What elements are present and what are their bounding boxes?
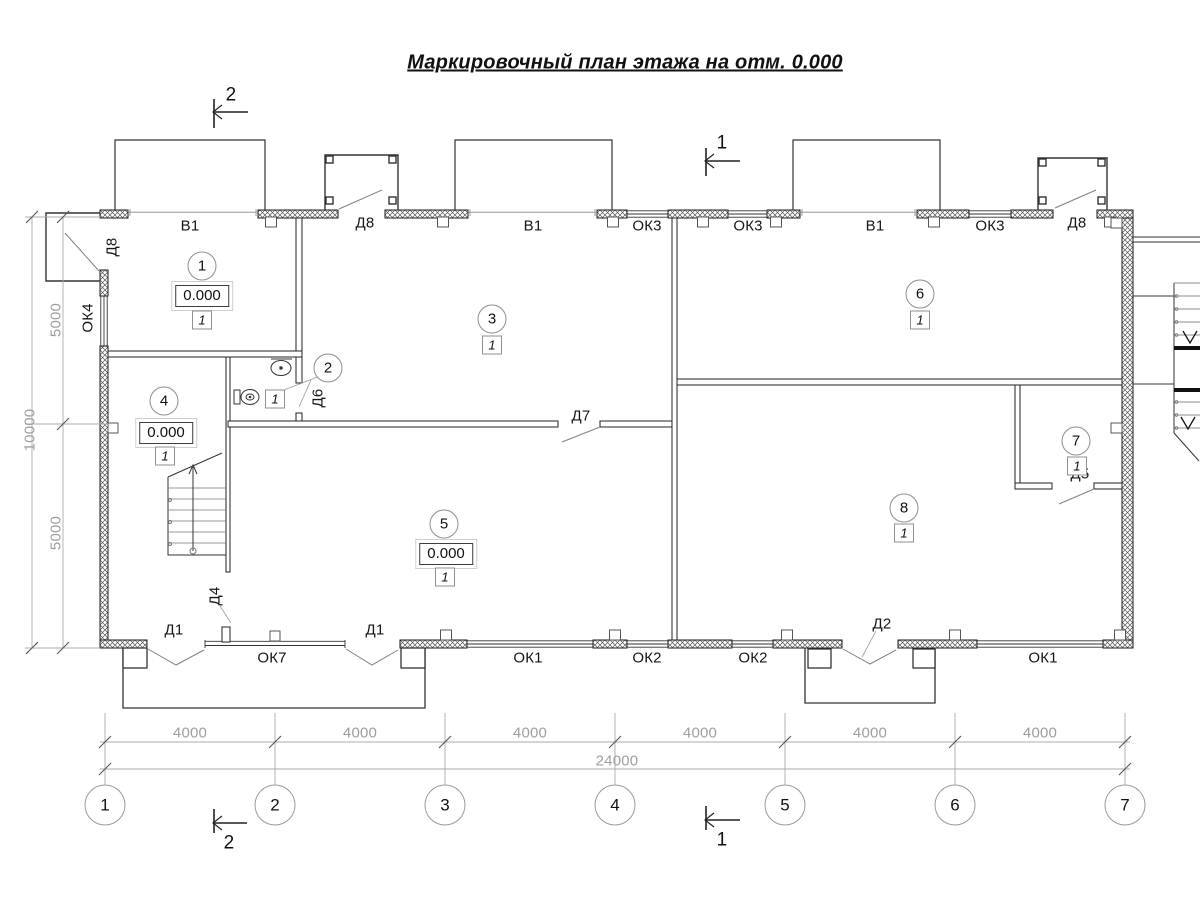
label-vent-v1-2: В1 [524,219,543,234]
window-symbols [101,211,1103,648]
dim-left-upper: 5000 [49,303,64,337]
room-5-elevation: 0.000 [419,543,473,565]
room-7-type-mark: 1 [1067,457,1087,476]
room-1-type-mark: 1 [192,311,212,330]
label-vent-v1-1: В1 [181,219,200,234]
dim-bay-5: 4000 [853,726,887,741]
section-1-bottom-label: 1 [717,831,728,850]
room-7-number: 7 [1062,427,1091,456]
axis-bubble-5: 5 [765,785,806,826]
internal-stair [168,453,226,555]
room-5-number: 5 [430,510,459,539]
label-door-d8-top-left: Д8 [356,216,375,231]
label-door-d7: Д7 [572,409,591,424]
room-1-number: 1 [188,252,217,281]
room-6-number: 6 [906,280,935,309]
room-4-number: 4 [150,387,179,416]
label-vent-v1-3: В1 [866,219,885,234]
axis-bubble-3: 3 [425,785,466,826]
dim-bay-3: 4000 [513,726,547,741]
label-door-d2: Д2 [873,617,892,632]
label-door-d4: Д4 [208,587,223,606]
drawing-title: Маркировочный план этажа на отм. 0.000 [407,52,843,75]
dim-bay-6: 4000 [1023,726,1057,741]
label-door-d6: Д6 [311,389,326,408]
floor-plan-sheet: Маркировочный план этажа на отм. 0.000 2… [0,0,1200,900]
room-4-elevation: 0.000 [139,422,193,444]
label-door-d8-top-right: Д8 [1068,216,1087,231]
leader-lines [220,376,876,657]
room-3-type-mark: 1 [482,336,502,355]
axis-bubble-7: 7 [1105,785,1146,826]
label-door-d1-1: Д1 [165,623,184,638]
dim-bay-1: 4000 [173,726,207,741]
room-2-number: 2 [314,354,343,383]
label-window-ok7: ОК7 [257,651,286,666]
dim-bay-2: 4000 [343,726,377,741]
section-1-top-label: 1 [717,134,728,153]
room-4-type-mark: 1 [155,447,175,466]
label-window-ok3-2: ОК3 [733,219,762,234]
room-8-type-mark: 1 [894,524,914,543]
label-window-ok2-1: ОК2 [632,651,661,666]
section-2-bottom-label: 2 [224,834,235,853]
dim-left-total: 10000 [23,409,38,452]
external-stair [1133,237,1200,461]
label-window-ok3-3: ОК3 [975,219,1004,234]
vent-ducts [115,140,940,210]
label-window-ok3-1: ОК3 [632,219,661,234]
exterior-walls [100,210,1133,648]
axis-bubble-4: 4 [595,785,636,826]
room-5-type-mark: 1 [435,568,455,587]
dim-bay-4: 4000 [683,726,717,741]
wall-post-marks [108,217,1126,641]
section-2-top-label: 2 [226,86,237,105]
dim-total: 24000 [596,754,639,769]
axis-bubble-6: 6 [935,785,976,826]
axis-bubble-1: 1 [85,785,126,826]
room-1-elevation: 0.000 [175,285,229,307]
label-window-ok1-2: ОК1 [1028,651,1057,666]
dim-left-lower: 5000 [49,516,64,550]
label-window-ok2-2: ОК2 [738,651,767,666]
label-door-d1-2: Д1 [366,623,385,638]
axis-bubble-2: 2 [255,785,296,826]
room-6-type-mark: 1 [910,311,930,330]
section-marks [213,99,740,833]
label-window-ok1-1: ОК1 [513,651,542,666]
room-2-type-mark: 1 [265,390,285,409]
room-8-number: 8 [890,494,919,523]
room-3-number: 3 [478,305,507,334]
interior-walls [108,218,1122,642]
label-door-d8-left: Д8 [105,238,120,257]
label-window-ok4: ОК4 [81,303,96,332]
